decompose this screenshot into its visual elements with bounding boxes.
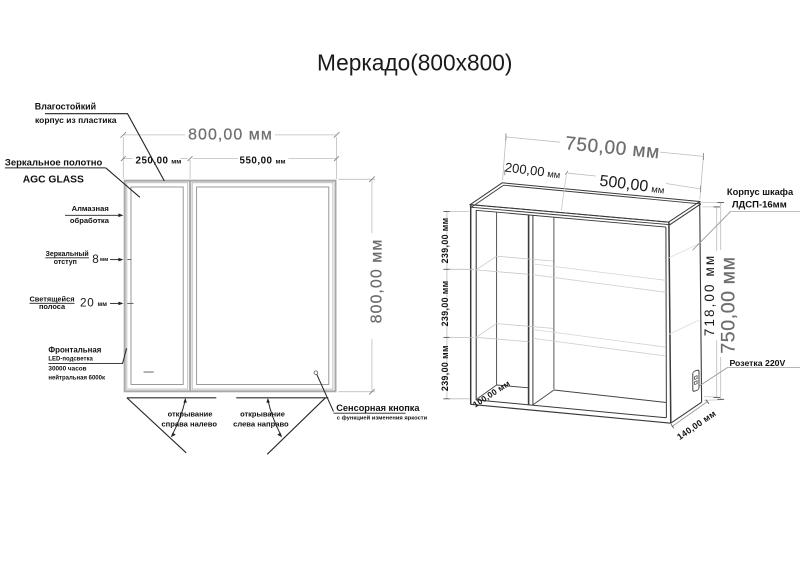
svg-text:239,00 мм: 239,00 мм: [440, 280, 450, 326]
svg-text:Сенсорная кнопка: Сенсорная кнопка: [336, 403, 420, 413]
svg-text:750,00 мм: 750,00 мм: [718, 256, 740, 353]
svg-text:отступ: отступ: [54, 259, 77, 266]
svg-text:550,00: 550,00: [240, 156, 273, 167]
svg-text:мм: мм: [171, 158, 181, 165]
svg-text:AGC GLASS: AGC GLASS: [23, 175, 84, 186]
svg-text:Корпус шкафа: Корпус шкафа: [727, 187, 794, 197]
svg-text:750,00 мм: 750,00 мм: [564, 133, 661, 163]
svg-text:20: 20: [80, 296, 95, 309]
svg-text:Зеркальный: Зеркальный: [45, 250, 88, 258]
svg-text:Розетка 220V: Розетка 220V: [729, 358, 785, 368]
svg-text:мм: мм: [100, 257, 108, 263]
svg-text:239,00 мм: 239,00 мм: [440, 217, 450, 263]
svg-text:мм: мм: [276, 158, 286, 165]
svg-text:Зеркальное полотно: Зеркальное полотно: [5, 157, 103, 168]
svg-text:718,00 мм: 718,00 мм: [702, 254, 717, 337]
svg-text:8: 8: [92, 253, 99, 266]
svg-text:200,00мм: 200,00мм: [504, 160, 561, 182]
svg-text:полоса: полоса: [39, 302, 66, 311]
svg-text:с функцией изменения яркости: с функцией изменения яркости: [337, 414, 428, 421]
svg-text:открывание: открывание: [240, 410, 285, 419]
svg-text:мм: мм: [98, 301, 108, 308]
svg-text:Меркадо(800x800): Меркадо(800x800): [317, 50, 512, 76]
svg-text:ЛДСП-16мм: ЛДСП-16мм: [732, 200, 787, 211]
svg-text:слева направо: слева направо: [233, 420, 289, 429]
svg-text:справа налево: справа налево: [161, 420, 217, 429]
svg-text:250,00: 250,00: [136, 156, 169, 167]
svg-text:открывание: открывание: [168, 410, 213, 419]
svg-text:Алмазная: Алмазная: [72, 204, 109, 213]
svg-text:корпус из пластика: корпус из пластика: [35, 115, 117, 125]
svg-text:обработка: обработка: [70, 216, 110, 225]
svg-text:800,00 мм: 800,00 мм: [188, 127, 273, 144]
svg-text:нейтральная 6000к: нейтральная 6000к: [48, 374, 105, 381]
svg-text:100,00 мм: 100,00 мм: [471, 378, 512, 409]
svg-text:LED-подсветка: LED-подсветка: [48, 357, 93, 363]
svg-text:140,00 мм: 140,00 мм: [675, 408, 718, 442]
svg-text:30000 часов: 30000 часов: [48, 365, 86, 372]
svg-text:800,00 мм: 800,00 мм: [368, 239, 385, 324]
svg-text:Влагостойкий: Влагостойкий: [35, 102, 96, 112]
svg-text:500,00мм: 500,00мм: [599, 173, 666, 198]
svg-text:239,00 мм: 239,00 мм: [440, 345, 450, 391]
svg-text:Фронтальная: Фронтальная: [48, 346, 101, 355]
